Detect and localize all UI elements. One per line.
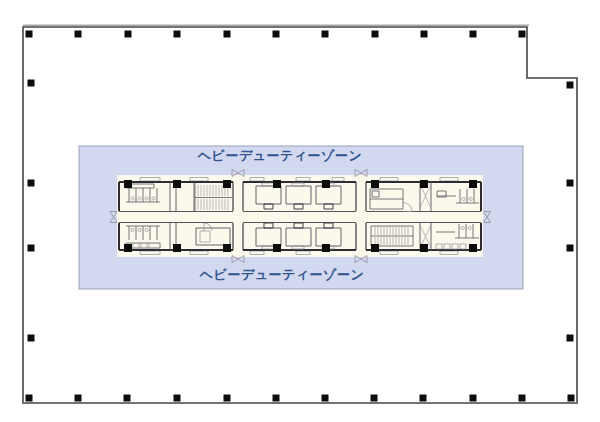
column-marker bbox=[519, 31, 526, 38]
column-marker bbox=[224, 31, 231, 38]
column-marker bbox=[420, 244, 428, 252]
column-marker bbox=[224, 395, 231, 402]
column-marker bbox=[174, 395, 181, 402]
column-marker bbox=[28, 80, 35, 87]
column-marker bbox=[273, 180, 281, 188]
column-marker bbox=[470, 31, 477, 38]
column-marker bbox=[124, 395, 131, 402]
floor-plan-drawing bbox=[0, 0, 600, 422]
column-marker bbox=[173, 180, 181, 188]
column-marker bbox=[26, 31, 33, 38]
column-marker bbox=[173, 244, 181, 252]
column-marker bbox=[125, 31, 132, 38]
column-marker bbox=[75, 395, 82, 402]
column-marker bbox=[420, 180, 428, 188]
column-marker bbox=[567, 335, 574, 342]
core-plan-paper bbox=[117, 175, 483, 257]
column-marker bbox=[124, 180, 132, 188]
column-marker bbox=[28, 335, 35, 342]
column-marker bbox=[273, 395, 280, 402]
column-marker bbox=[223, 180, 231, 188]
column-marker bbox=[273, 244, 281, 252]
column-marker bbox=[322, 31, 329, 38]
floor-plan-page: ヘビーデューティーゾーン ヘビーデューティーゾーン bbox=[0, 0, 600, 422]
column-marker bbox=[470, 395, 477, 402]
column-marker bbox=[567, 82, 574, 89]
column-marker bbox=[124, 244, 132, 252]
column-marker bbox=[28, 245, 35, 252]
column-marker bbox=[322, 180, 330, 188]
column-marker bbox=[519, 395, 526, 402]
column-marker bbox=[567, 180, 574, 187]
column-marker bbox=[421, 31, 428, 38]
column-marker bbox=[567, 245, 574, 252]
column-marker bbox=[469, 180, 477, 188]
column-marker bbox=[223, 244, 231, 252]
column-marker bbox=[372, 31, 379, 38]
column-marker bbox=[371, 244, 379, 252]
heavy-duty-zone-label-top: ヘビーデューティーゾーン bbox=[160, 147, 400, 165]
column-marker bbox=[322, 395, 329, 402]
column-marker bbox=[420, 395, 427, 402]
column-marker bbox=[273, 31, 280, 38]
column-marker bbox=[322, 244, 330, 252]
heavy-duty-zone-label-bottom: ヘビーデューティーゾーン bbox=[162, 266, 402, 284]
column-marker bbox=[75, 31, 82, 38]
column-marker bbox=[26, 395, 33, 402]
column-marker bbox=[469, 244, 477, 252]
core-plan bbox=[110, 170, 491, 263]
column-marker bbox=[371, 180, 379, 188]
column-marker bbox=[174, 31, 181, 38]
column-marker bbox=[28, 180, 35, 187]
column-marker bbox=[568, 395, 575, 402]
column-marker bbox=[371, 395, 378, 402]
